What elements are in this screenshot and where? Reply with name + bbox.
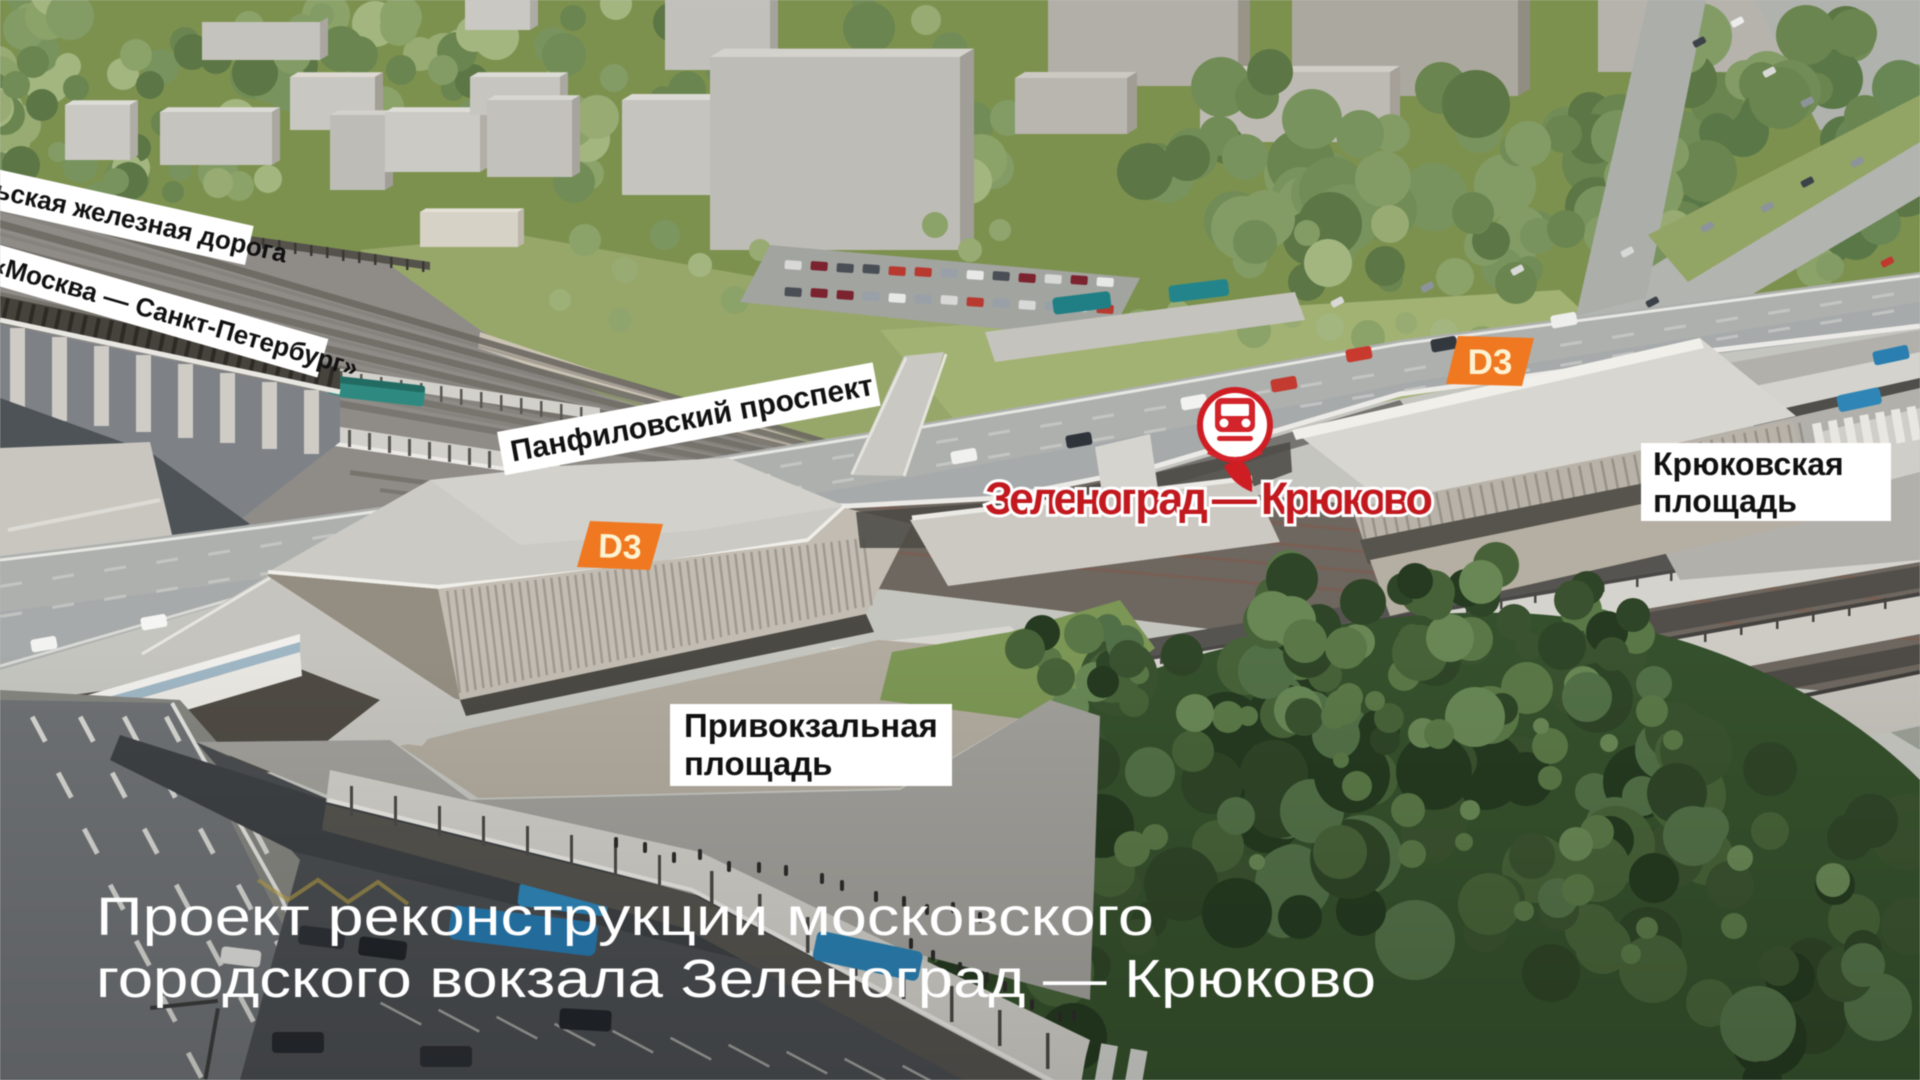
svg-text:D3: D3 [598,527,643,566]
svg-text:Зеленоград — Крюково: Зеленоград — Крюково [985,473,1433,524]
svg-text:Привокзальная: Привокзальная [684,707,938,744]
svg-text:городского вокзала Зеленоград: городского вокзала Зеленоград — Крюково [96,949,1376,1009]
svg-text:площадь: площадь [1653,483,1797,519]
svg-text:Проект реконструкции московско: Проект реконструкции московского [96,887,1154,947]
svg-text:площадь: площадь [684,745,832,782]
svg-text:Крюковская: Крюковская [1653,446,1844,482]
svg-text:D3: D3 [1468,343,1513,382]
